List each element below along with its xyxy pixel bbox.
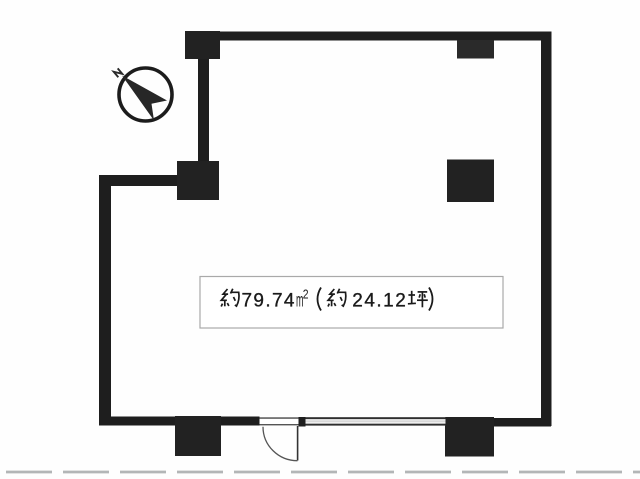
svg-text:2: 2	[303, 287, 309, 301]
svg-text:24.12: 24.12	[352, 291, 406, 312]
svg-text:79.74: 79.74	[242, 291, 295, 312]
